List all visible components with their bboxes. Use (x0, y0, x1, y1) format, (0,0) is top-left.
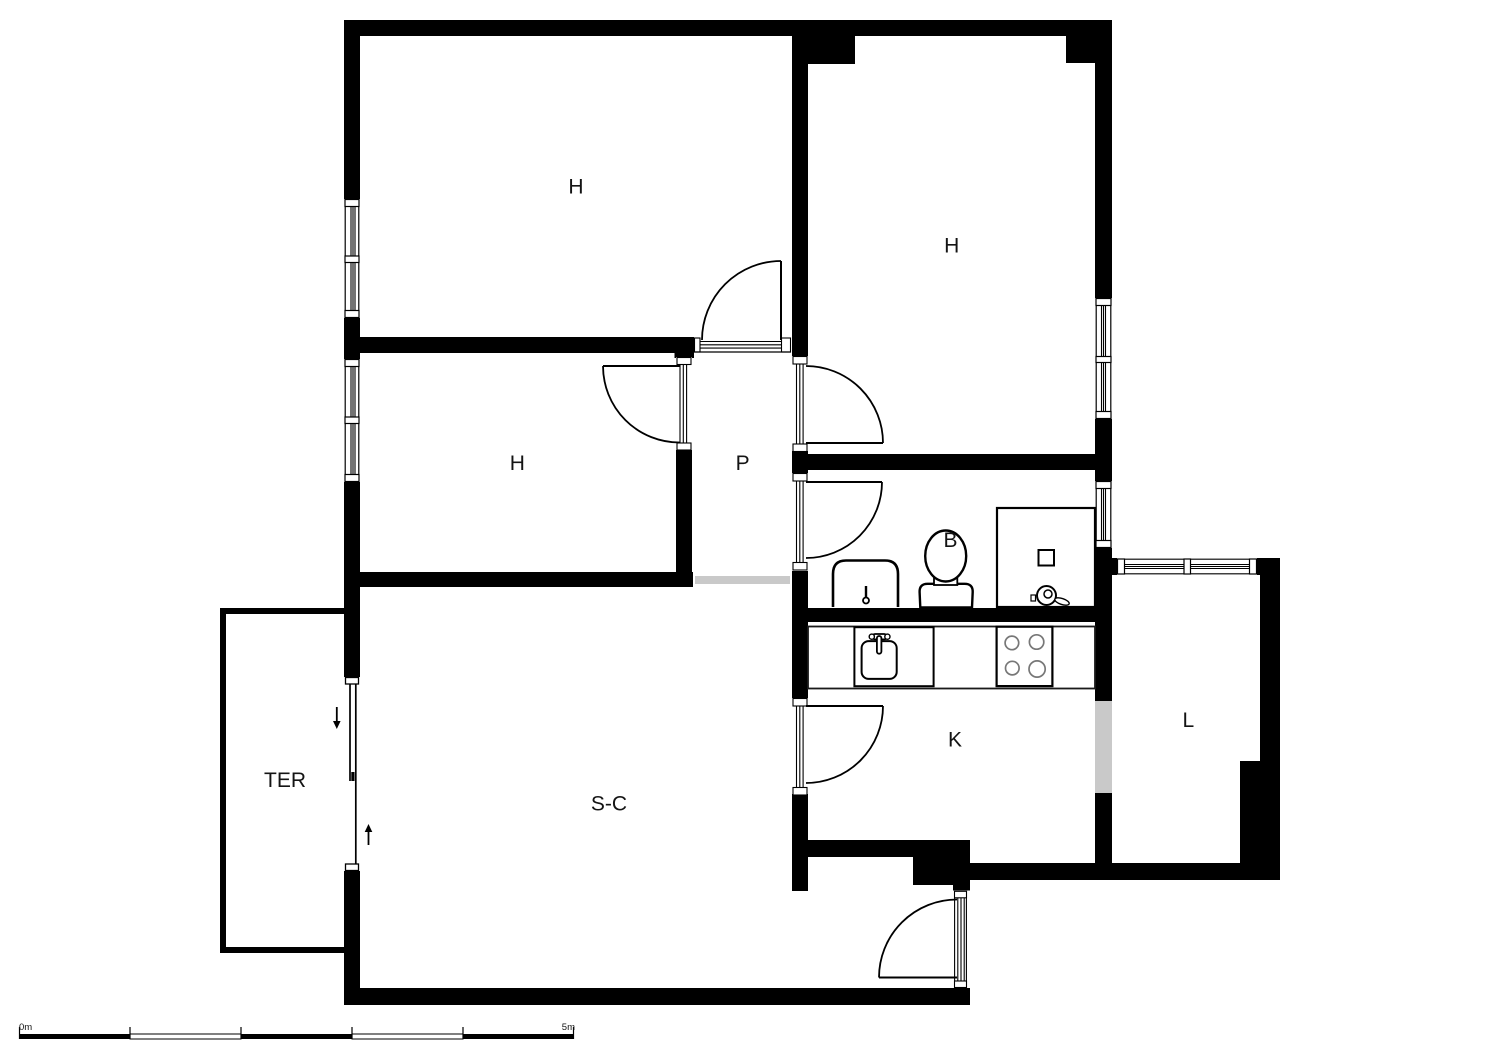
svg-text:K: K (948, 729, 962, 752)
svg-text:P: P (736, 452, 750, 475)
svg-text:TER: TER (264, 769, 306, 792)
svg-text:H: H (568, 176, 583, 199)
svg-text:B: B (943, 529, 957, 552)
svg-text:5m: 5m (562, 1022, 575, 1033)
svg-text:0m: 0m (19, 1022, 32, 1033)
svg-text:H: H (510, 452, 525, 475)
svg-text:H: H (944, 235, 959, 258)
svg-text:L: L (1182, 709, 1194, 732)
svg-text:S-C: S-C (591, 793, 627, 816)
